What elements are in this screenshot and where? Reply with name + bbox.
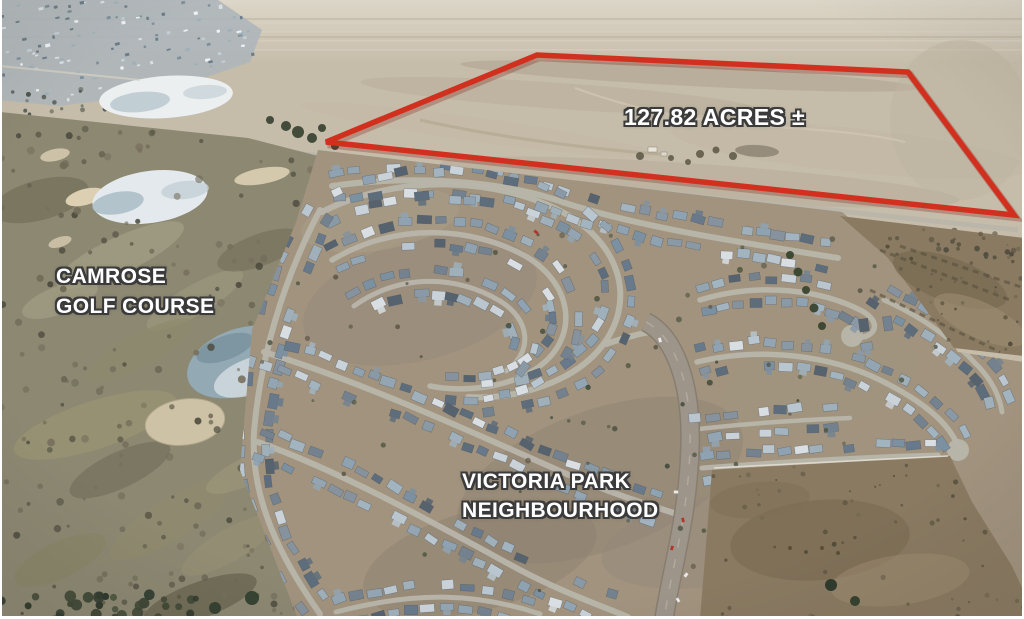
neighbourhood-label-line1: VICTORIA PARK — [462, 467, 659, 496]
parcel-acreage-label: 127.82 ACRES ± — [624, 104, 805, 131]
golf-course-label: CAMROSE GOLF COURSE — [56, 262, 214, 322]
aerial-photo: 127.82 ACRES ± CAMROSE GOLF COURSE VICTO… — [0, 0, 1024, 619]
neighbourhood-label: VICTORIA PARK NEIGHBOURHOOD — [462, 467, 659, 525]
neighbourhood-label-line2: NEIGHBOURHOOD — [462, 496, 659, 525]
golf-course-label-line2: GOLF COURSE — [56, 292, 214, 322]
golf-course-label-line1: CAMROSE — [56, 262, 214, 292]
